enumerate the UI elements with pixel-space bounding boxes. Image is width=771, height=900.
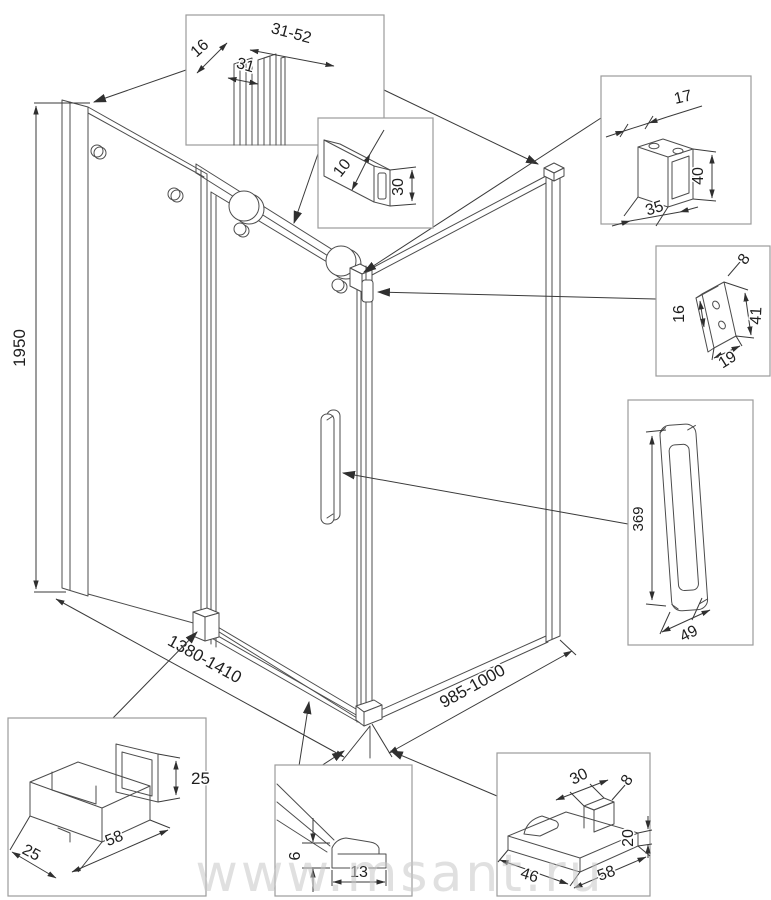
- shower-enclosure-diagram: 1950 1380-1410 985-1000: [0, 0, 771, 900]
- watermark-text: www.msant.ru: [195, 844, 604, 900]
- leader-wall-bracket: [378, 292, 656, 299]
- leader-top-rail: [294, 148, 320, 223]
- corner-post: [362, 266, 373, 722]
- callout-top-rail-tube: 10 30: [318, 118, 433, 228]
- right-wall-profile-cap: [544, 163, 564, 181]
- dim-label-tube-height: 30: [390, 178, 407, 196]
- callout-wall-bracket: 16 8 41 19: [656, 246, 770, 376]
- dim-label-housing-height: 40: [690, 167, 707, 185]
- leader-door-handle: [343, 473, 628, 524]
- bottom-guide-block: [193, 608, 219, 641]
- dim-label-side-width: 985-1000: [436, 660, 508, 711]
- bottom-track: [193, 608, 382, 758]
- left-wall-profile: [62, 100, 88, 596]
- leader-wall-profile-left: [94, 70, 186, 102]
- panel-fixing-knob: [91, 145, 106, 159]
- door-handle: [321, 410, 340, 524]
- dim-label-height: 1950: [10, 329, 29, 367]
- dim-side-width: 985-1000: [372, 640, 576, 757]
- dim-label-bracket-height: 41: [748, 306, 766, 325]
- callout-bottom-guide: 25 58 25: [8, 718, 210, 896]
- return-side-panel: [372, 163, 564, 722]
- wall-bracket-on-post: [362, 280, 373, 302]
- roller: [229, 191, 264, 237]
- main-dimensions: 1950 1380-1410 985-1000: [10, 103, 576, 761]
- main-isometric-view: [62, 100, 564, 758]
- dim-label-bracket-spacing: 16: [671, 305, 688, 323]
- dim-height: 1950: [10, 103, 90, 592]
- technical-drawing-page: 1950 1380-1410 985-1000: [0, 0, 771, 900]
- callout-door-handle: 369 49: [628, 400, 753, 646]
- dim-label-guide-height: 25: [191, 769, 210, 788]
- fixed-side-panel: [88, 107, 207, 630]
- dim-label-bumper-height: 20: [620, 829, 637, 847]
- leader-bottom-guide: [112, 632, 197, 719]
- leader-threshold-a: [299, 702, 309, 766]
- corner-bumper-block: [356, 700, 382, 726]
- leader-threshold-b: [321, 751, 344, 766]
- panel-fixing-knob: [168, 188, 183, 202]
- callout-roller-housing: 17 40 35: [601, 76, 751, 226]
- dim-label-handle-length: 369: [630, 506, 647, 531]
